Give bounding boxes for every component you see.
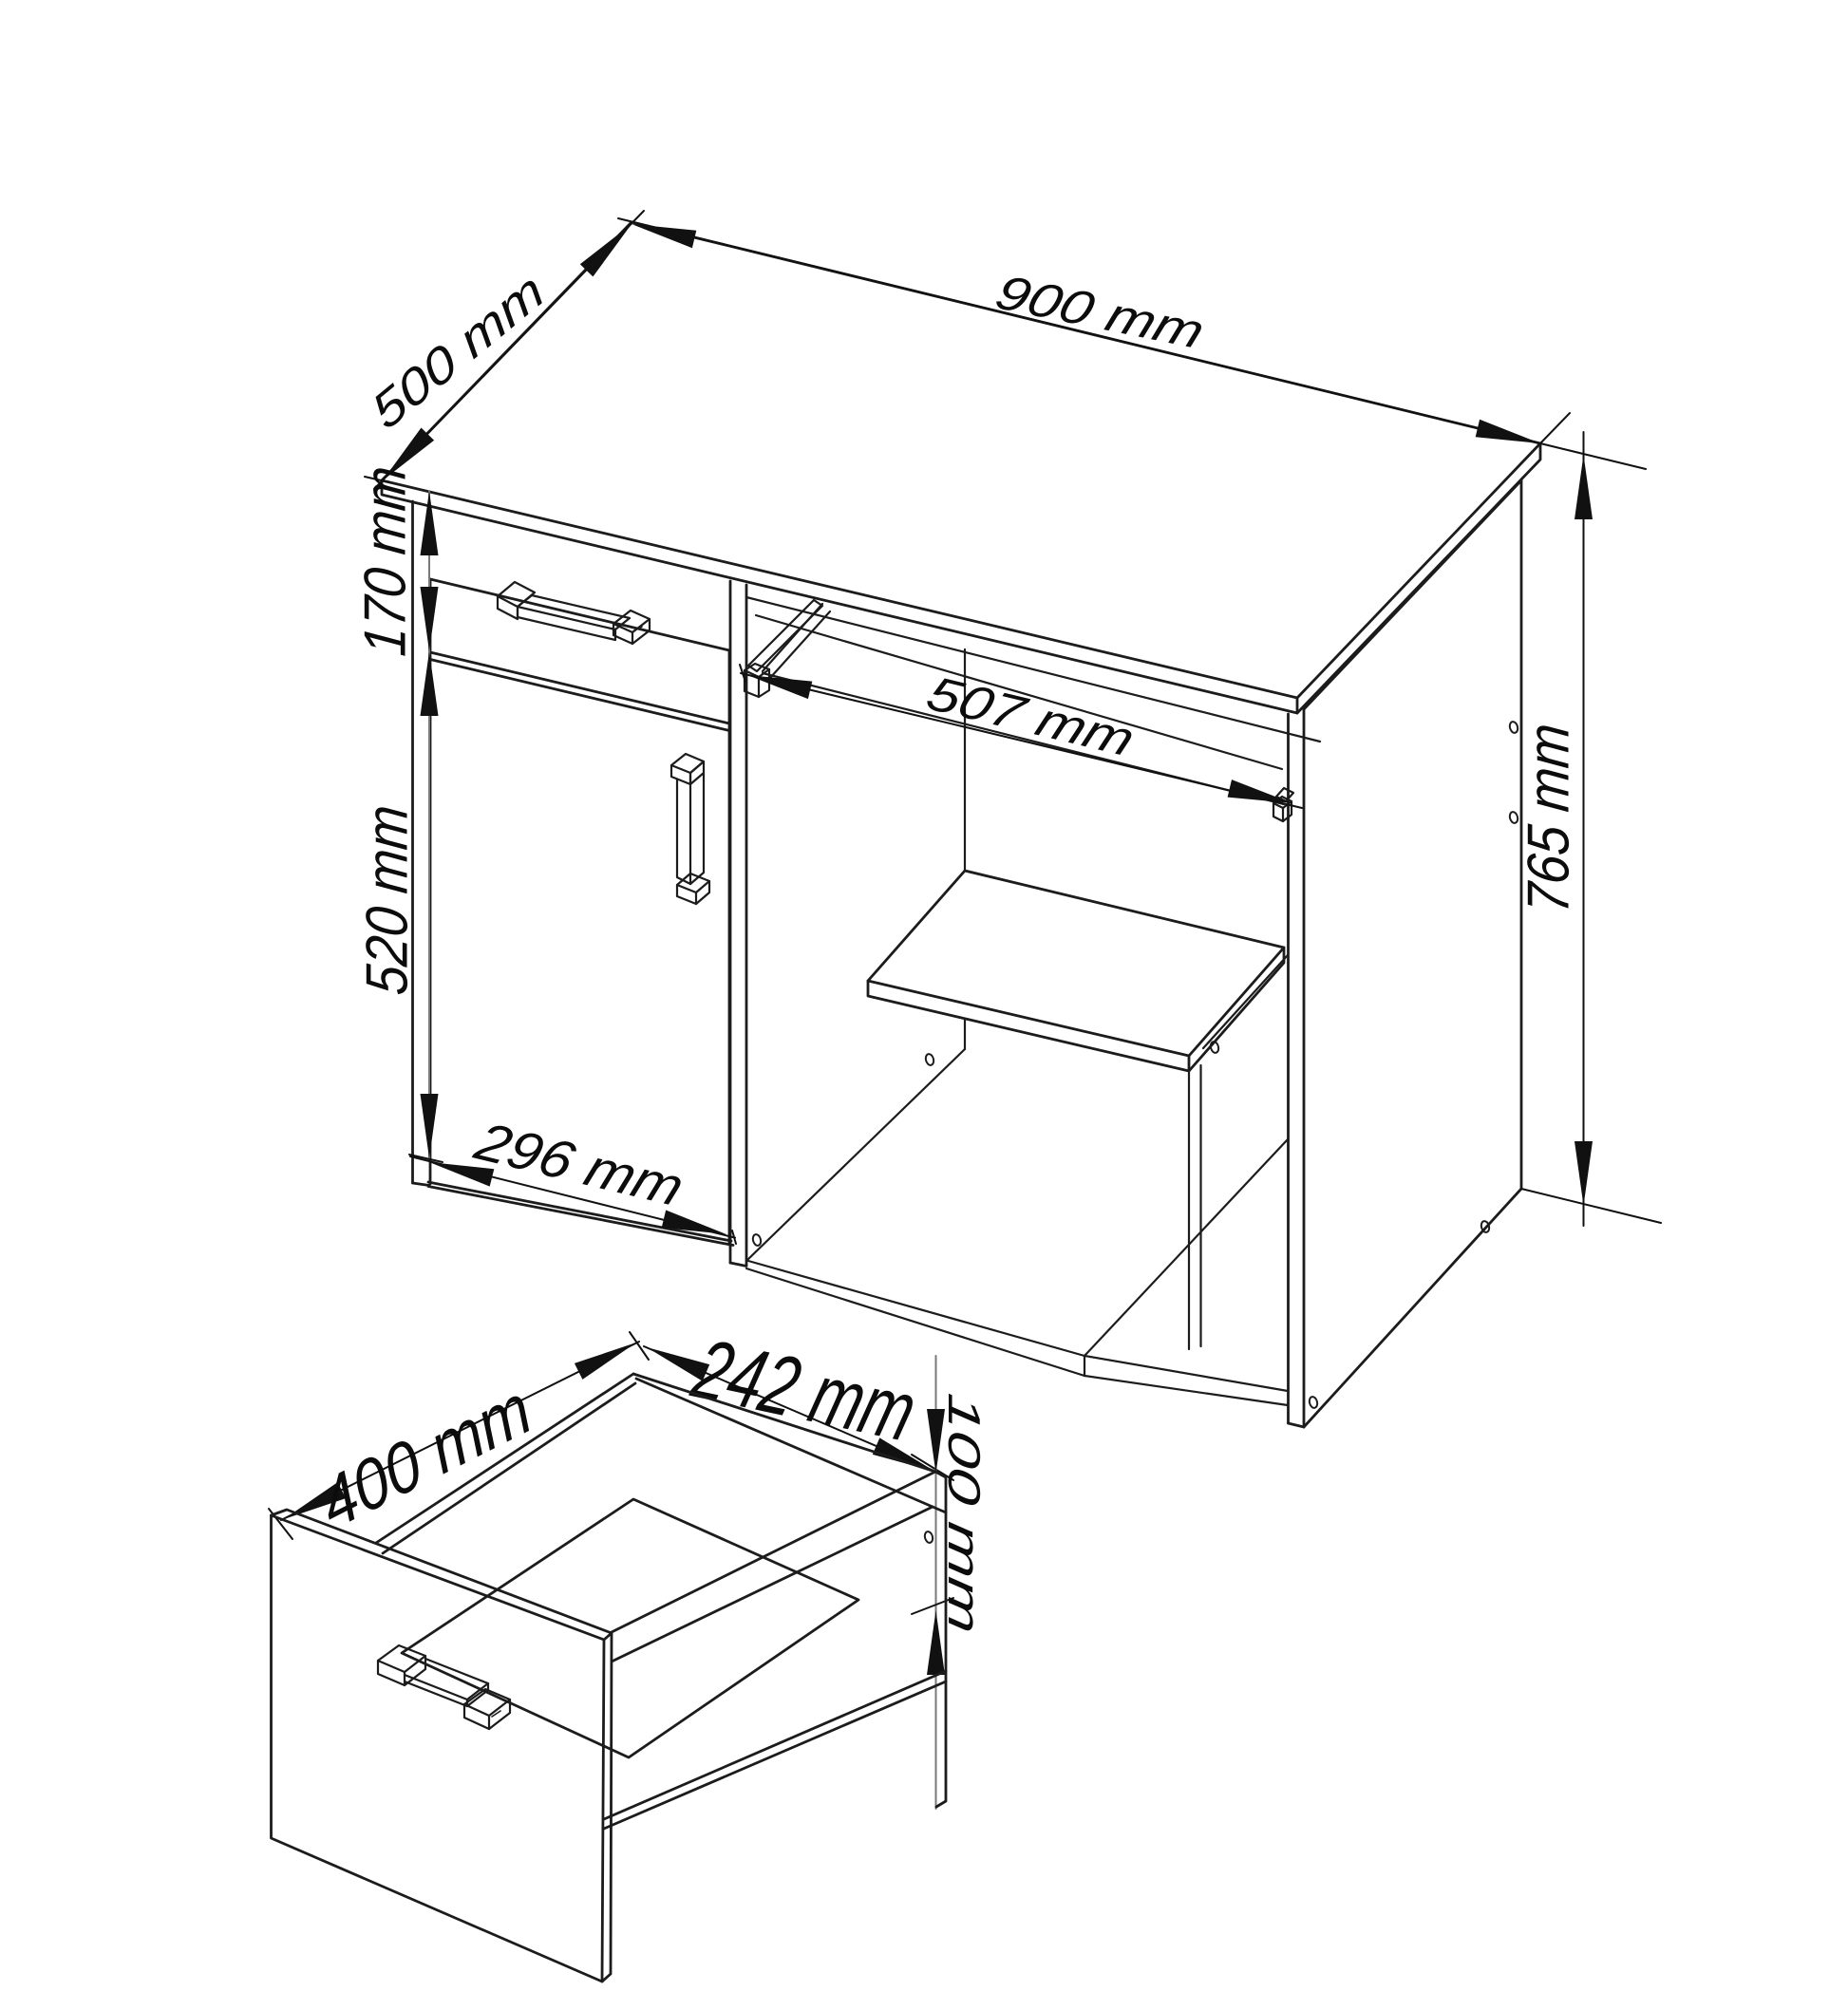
svg-text:765 mm: 765 mm [1516, 721, 1581, 915]
svg-text:170 mm: 170 mm [352, 463, 418, 658]
svg-text:520 mm: 520 mm [354, 802, 420, 997]
